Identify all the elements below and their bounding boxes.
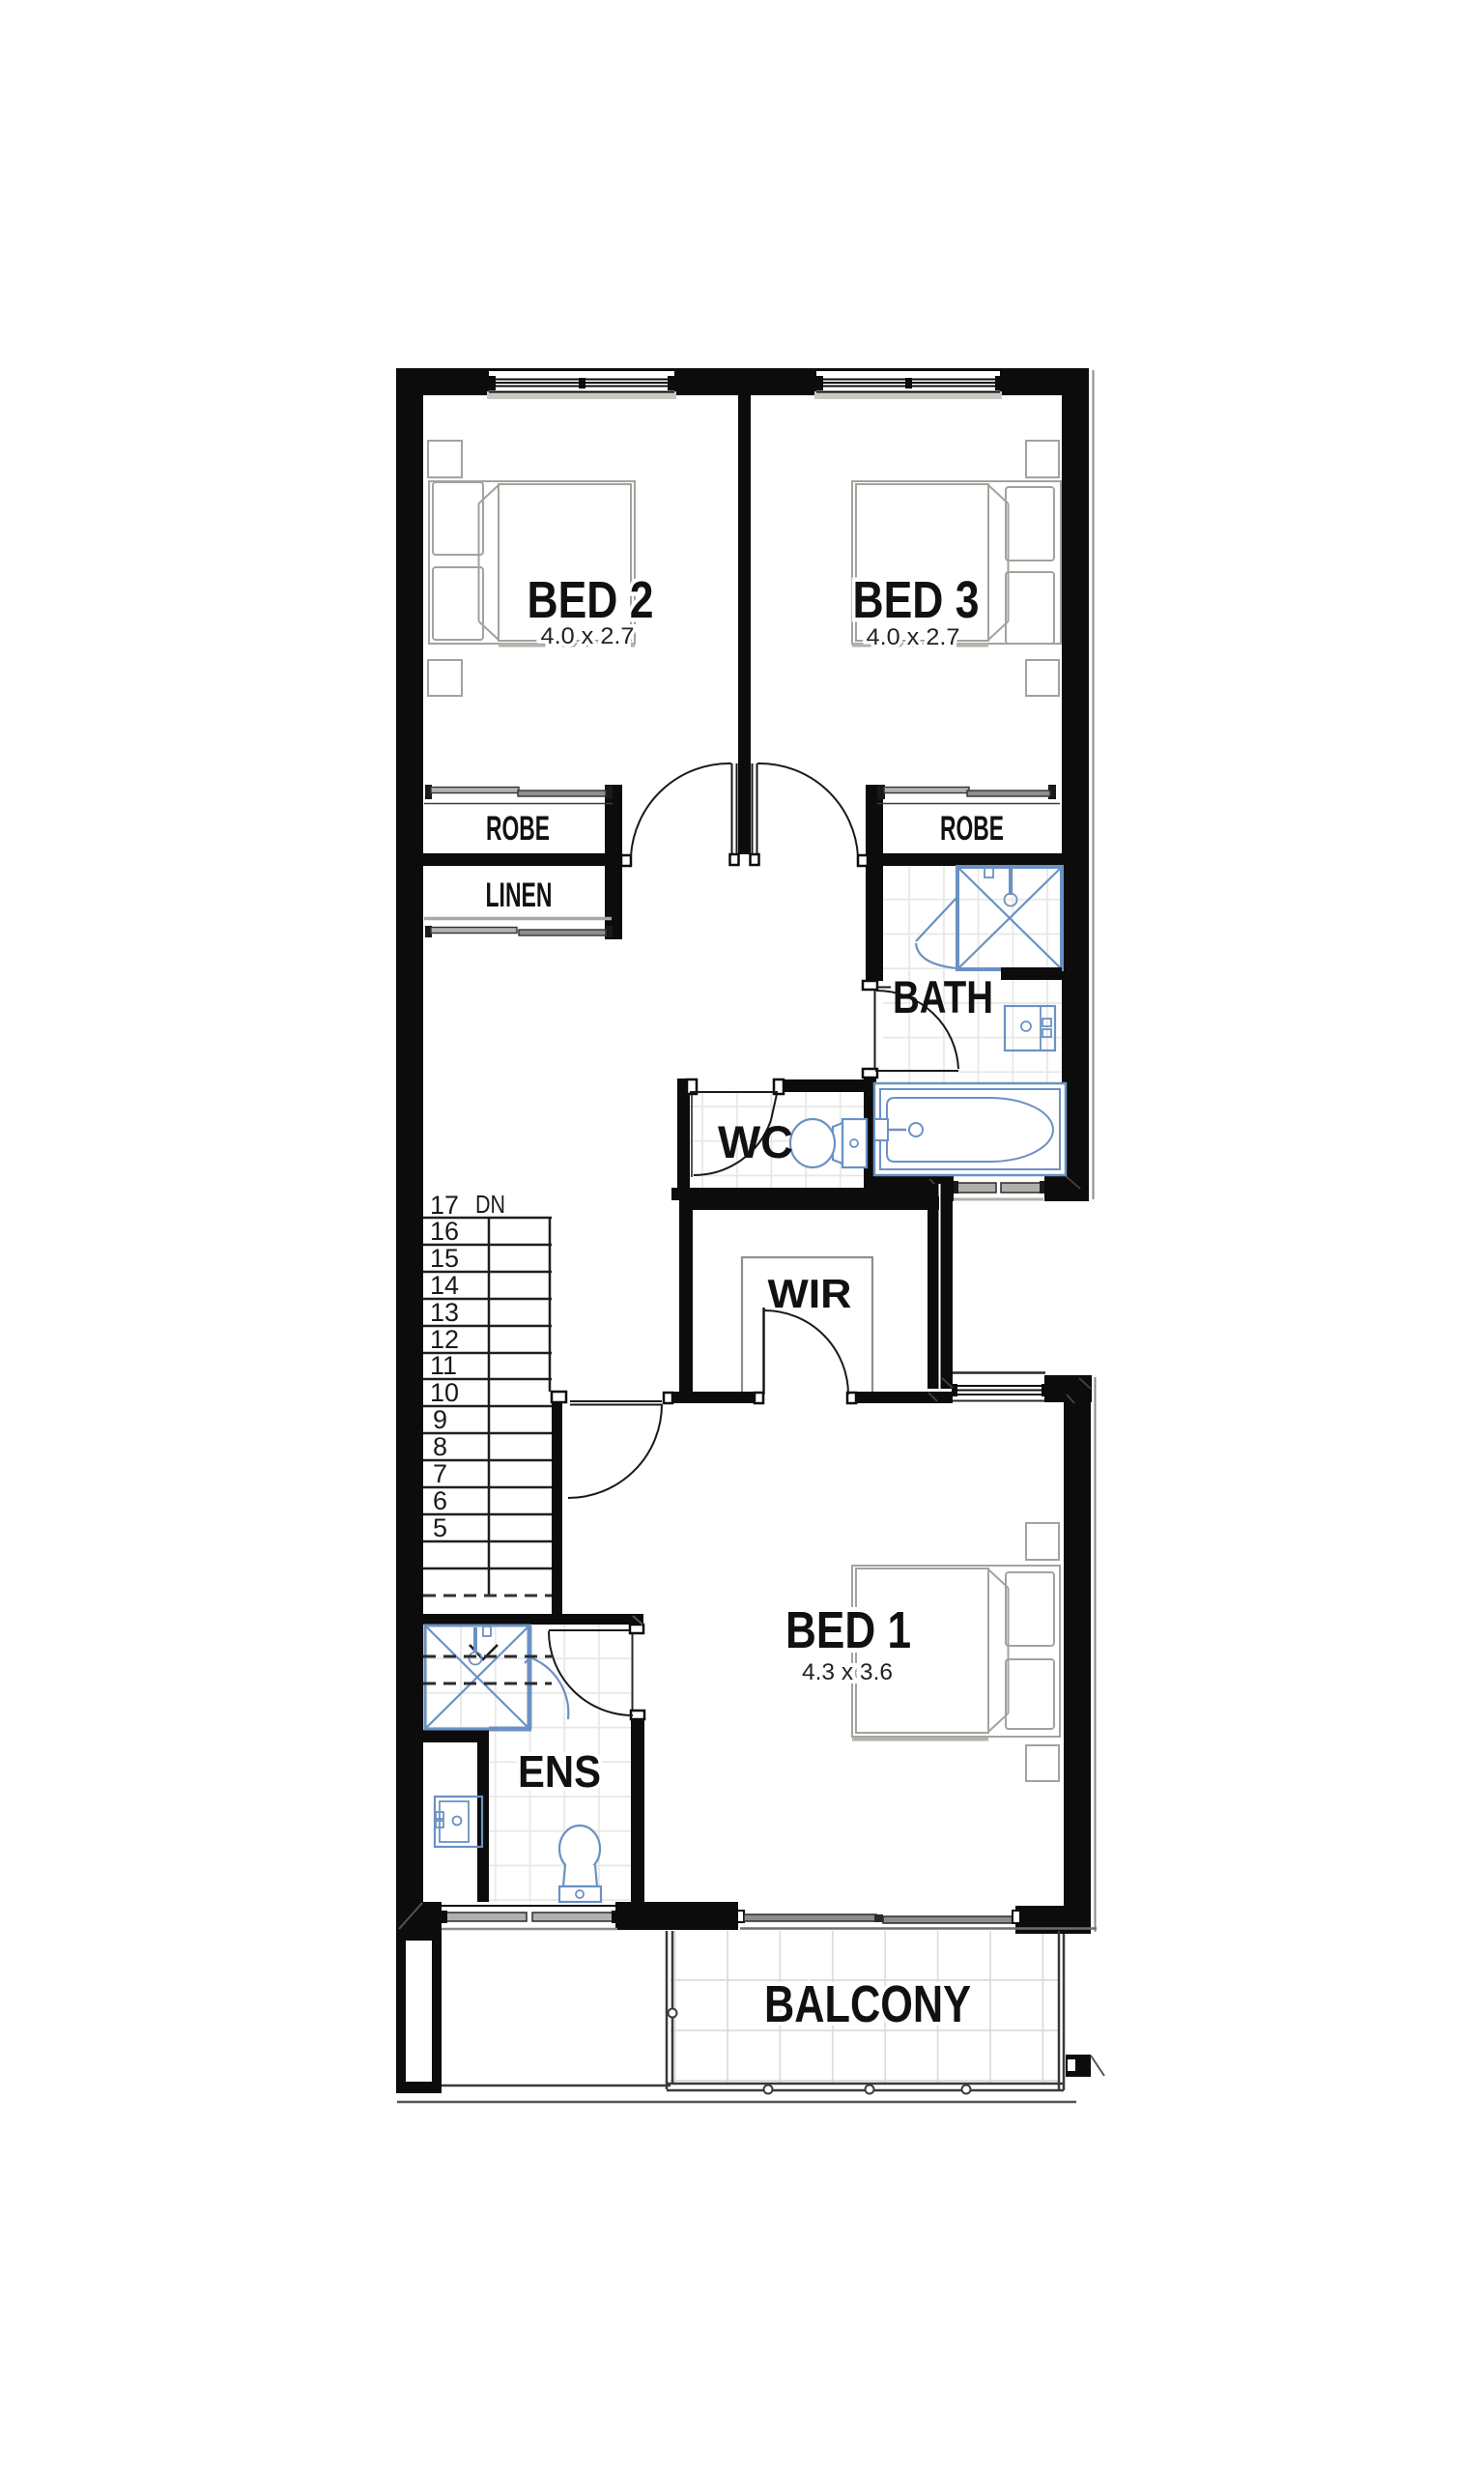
svg-text:BED 1: BED 1 (785, 1601, 911, 1659)
svg-text:5: 5 (433, 1513, 447, 1542)
svg-text:12: 12 (430, 1325, 459, 1354)
svg-text:BED 2: BED 2 (528, 571, 654, 629)
svg-text:13: 13 (430, 1298, 459, 1327)
svg-text:15: 15 (430, 1244, 459, 1273)
svg-text:DN: DN (475, 1190, 505, 1219)
svg-text:ENS: ENS (518, 1746, 601, 1797)
svg-text:16: 16 (430, 1217, 459, 1246)
svg-text:11: 11 (430, 1351, 457, 1380)
svg-text:6: 6 (433, 1486, 447, 1515)
svg-text:14: 14 (430, 1271, 459, 1300)
svg-text:LINEN: LINEN (486, 877, 553, 914)
svg-text:9: 9 (433, 1405, 447, 1434)
svg-text:BALCONY: BALCONY (764, 1975, 971, 2033)
svg-text:7: 7 (433, 1459, 447, 1488)
svg-text:ROBE: ROBE (940, 810, 1004, 848)
svg-text:BATH: BATH (893, 971, 993, 1022)
svg-text:BED 3: BED 3 (853, 571, 980, 629)
svg-text:4.0 x 2.7: 4.0 x 2.7 (867, 624, 960, 650)
svg-text:4.3 x 3.6: 4.3 x 3.6 (802, 1659, 893, 1685)
svg-text:8: 8 (433, 1432, 447, 1461)
svg-text:WC: WC (718, 1116, 793, 1167)
svg-text:ROBE: ROBE (486, 810, 550, 848)
svg-text:WIR: WIR (768, 1271, 852, 1316)
svg-text:4.0 x 2.7: 4.0 x 2.7 (541, 623, 635, 649)
svg-text:10: 10 (430, 1378, 459, 1407)
svg-text:17: 17 (430, 1191, 459, 1220)
